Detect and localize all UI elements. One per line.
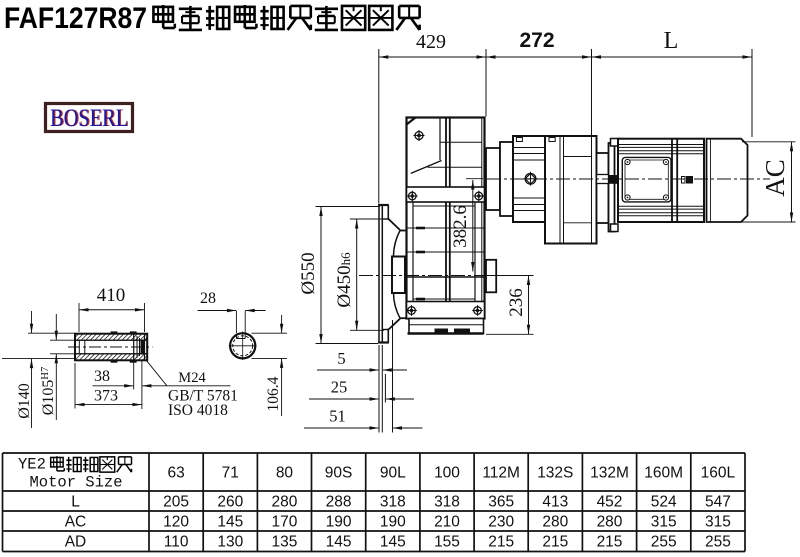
svg-text:205: 205 — [163, 494, 189, 511]
svg-text:280: 280 — [542, 514, 568, 531]
svg-text:112M: 112M — [482, 465, 520, 482]
svg-text:524: 524 — [651, 494, 677, 511]
svg-text:Ø140: Ø140 — [16, 383, 33, 419]
svg-text:215: 215 — [542, 534, 568, 551]
svg-text:145: 145 — [217, 514, 243, 531]
svg-text:547: 547 — [705, 494, 731, 511]
svg-text:Ø450h6: Ø450h6 — [334, 252, 355, 308]
svg-text:L: L — [664, 28, 679, 54]
svg-text:130: 130 — [217, 534, 243, 551]
svg-text:215: 215 — [488, 534, 514, 551]
svg-text:120: 120 — [163, 514, 189, 531]
svg-text:106.4: 106.4 — [265, 376, 282, 411]
svg-text:315: 315 — [651, 514, 677, 531]
svg-text:110: 110 — [164, 534, 189, 551]
svg-text:145: 145 — [326, 534, 352, 551]
svg-text:5: 5 — [337, 349, 345, 368]
svg-text:260: 260 — [217, 494, 243, 511]
svg-text:FAF127R87: FAF127R87 — [4, 2, 147, 35]
svg-text:190: 190 — [380, 514, 406, 531]
svg-text:272: 272 — [519, 29, 554, 52]
svg-text:280: 280 — [597, 514, 623, 531]
svg-text:429: 429 — [416, 31, 446, 53]
svg-text:AD: AD — [65, 534, 87, 551]
svg-text:373: 373 — [94, 388, 118, 405]
svg-text:190: 190 — [326, 514, 352, 531]
svg-text:255: 255 — [705, 534, 731, 551]
svg-text:38: 38 — [94, 368, 110, 385]
svg-text:236: 236 — [506, 288, 527, 317]
svg-text:132S: 132S — [537, 465, 573, 482]
svg-text:63: 63 — [167, 465, 184, 482]
svg-text:413: 413 — [542, 494, 568, 511]
svg-text:132M: 132M — [590, 465, 629, 482]
svg-text:318: 318 — [434, 494, 460, 511]
svg-text:M24: M24 — [178, 370, 206, 386]
svg-text:Motor Size: Motor Size — [29, 474, 122, 492]
svg-text:365: 365 — [488, 494, 514, 511]
svg-text:410: 410 — [97, 285, 126, 306]
svg-text:Ø550: Ø550 — [298, 252, 319, 294]
svg-text:452: 452 — [597, 494, 623, 511]
svg-text:215: 215 — [597, 534, 623, 551]
svg-text:80: 80 — [276, 465, 294, 482]
svg-text:160L: 160L — [701, 465, 736, 482]
svg-text:210: 210 — [434, 514, 460, 531]
svg-text:ISO 4018: ISO 4018 — [168, 402, 228, 419]
svg-text:90L: 90L — [380, 465, 406, 482]
svg-text:25: 25 — [331, 378, 348, 397]
svg-text:135: 135 — [272, 534, 298, 551]
svg-text:145: 145 — [380, 534, 406, 551]
svg-text:L: L — [71, 494, 80, 511]
svg-text:100: 100 — [434, 465, 460, 482]
svg-text:170: 170 — [272, 514, 298, 531]
svg-text:230: 230 — [488, 514, 514, 531]
svg-text:Ø105H7: Ø105H7 — [40, 367, 58, 415]
svg-text:90S: 90S — [325, 465, 353, 482]
svg-text:BOSERL: BOSERL — [50, 105, 128, 132]
svg-text:382.6: 382.6 — [450, 205, 471, 248]
svg-text:AC: AC — [760, 159, 790, 197]
svg-text:51: 51 — [329, 407, 346, 426]
svg-text:AC: AC — [65, 514, 87, 531]
svg-text:160M: 160M — [644, 465, 683, 482]
svg-text:280: 280 — [272, 494, 298, 511]
svg-text:28: 28 — [200, 290, 216, 307]
svg-text:71: 71 — [222, 465, 239, 482]
svg-text:315: 315 — [705, 514, 731, 531]
svg-text:255: 255 — [651, 534, 677, 551]
svg-text:YE2: YE2 — [18, 456, 46, 474]
svg-text:288: 288 — [326, 494, 352, 511]
svg-text:155: 155 — [434, 534, 460, 551]
svg-text:318: 318 — [380, 494, 406, 511]
